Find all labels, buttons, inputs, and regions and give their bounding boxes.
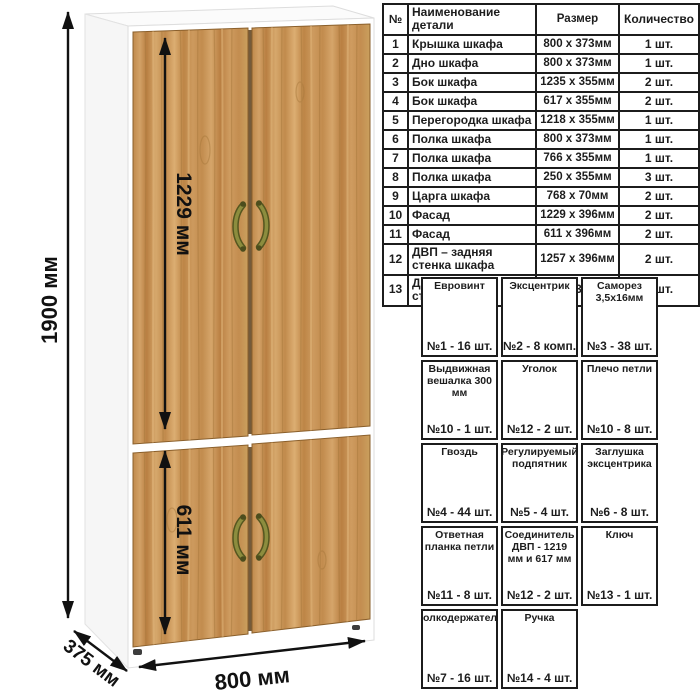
dimension-upper-door-label: 1229 мм bbox=[172, 172, 195, 256]
cabinet-side-panel bbox=[85, 14, 128, 668]
hardware-item: Заглушка эксцентрика№6 - 8 шт. bbox=[581, 443, 658, 523]
parts-table-header-row: № Наименование детали Размер Количество bbox=[383, 4, 699, 35]
table-cell-name: Крышка шкафа bbox=[408, 35, 536, 54]
table-row: 12ДВП – задняя стенка шкафа1257 x 396мм2… bbox=[383, 244, 699, 275]
table-cell-size: 800 x 373мм bbox=[536, 54, 619, 73]
dimension-lower-door-label: 611 мм bbox=[172, 505, 195, 576]
table-cell-name: Фасад bbox=[408, 206, 536, 225]
table-row: 2Дно шкафа800 x 373мм1 шт. bbox=[383, 54, 699, 73]
table-cell-num: 1 bbox=[383, 35, 408, 54]
hardware-item-count: №2 - 8 комп. bbox=[503, 339, 576, 353]
table-cell-num: 2 bbox=[383, 54, 408, 73]
table-cell-name: Фасад bbox=[408, 225, 536, 244]
dimension-height-label: 1900 мм bbox=[37, 256, 62, 344]
table-row: 8Полка шкафа250 x 355мм3 шт. bbox=[383, 168, 699, 187]
wardrobe-illustration: 1900 мм 1229 мм 611 мм 800 мм 375 мм bbox=[0, 0, 420, 700]
hardware-item-name: Ответная планка петли bbox=[424, 530, 495, 554]
hardware-item-name: Уголок bbox=[522, 364, 557, 376]
table-cell-qty: 2 шт. bbox=[619, 73, 699, 92]
table-cell-qty: 2 шт. bbox=[619, 187, 699, 206]
table-cell-name: Бок шкафа bbox=[408, 73, 536, 92]
hardware-item: Плечо петли№10 - 8 шт. bbox=[581, 360, 658, 440]
table-row: 7Полка шкафа766 x 355мм1 шт. bbox=[383, 149, 699, 168]
table-cell-num: 8 bbox=[383, 168, 408, 187]
table-row: 3Бок шкафа1235 x 355мм2 шт. bbox=[383, 73, 699, 92]
hardware-item-count: №7 - 16 шт. bbox=[427, 671, 493, 685]
table-row: 5Перегородка шкафа1218 x 355мм1 шт. bbox=[383, 111, 699, 130]
table-cell-qty: 1 шт. bbox=[619, 130, 699, 149]
hardware-item-name: Саморез 3,5x16мм bbox=[584, 281, 655, 305]
column-header-size: Размер bbox=[536, 4, 619, 35]
table-row: 9Царга шкафа768 x 70мм2 шт. bbox=[383, 187, 699, 206]
hardware-item-name: Регулируемый подпятник bbox=[501, 447, 578, 471]
hardware-item: Ключ№13 - 1 шт. bbox=[581, 526, 658, 606]
hardware-item-name: Гвоздь bbox=[441, 447, 478, 459]
cabinet-foot-left bbox=[133, 649, 142, 655]
hardware-item-name: Заглушка эксцентрика bbox=[584, 447, 655, 471]
table-cell-num: 10 bbox=[383, 206, 408, 225]
table-cell-size: 617 x 355мм bbox=[536, 92, 619, 111]
hardware-item-name: Выдвижная вешалка 300 мм bbox=[424, 364, 495, 399]
table-cell-size: 1229 x 396мм bbox=[536, 206, 619, 225]
table-cell-size: 768 x 70мм bbox=[536, 187, 619, 206]
table-row: 11Фасад611 x 396мм2 шт. bbox=[383, 225, 699, 244]
table-cell-num: 13 bbox=[383, 275, 408, 306]
hardware-item: Ручка№14 - 4 шт. bbox=[501, 609, 578, 689]
hardware-item-count: №3 - 38 шт. bbox=[587, 339, 653, 353]
hardware-item: Уголок№12 - 2 шт. bbox=[501, 360, 578, 440]
table-cell-num: 12 bbox=[383, 244, 408, 275]
hardware-item: Ответная планка петли№11 - 8 шт. bbox=[421, 526, 498, 606]
hardware-item-count: №12 - 2 шт. bbox=[507, 588, 573, 602]
table-cell-num: 3 bbox=[383, 73, 408, 92]
table-row: 10Фасад1229 x 396мм2 шт. bbox=[383, 206, 699, 225]
hardware-item-count: №14 - 4 шт. bbox=[507, 671, 573, 685]
table-cell-qty: 1 шт. bbox=[619, 54, 699, 73]
hardware-grid: Евровинт№1 - 16 шт.Эксцентрик№2 - 8 комп… bbox=[421, 277, 658, 689]
hardware-item: Регулируемый подпятник№5 - 4 шт. bbox=[501, 443, 578, 523]
table-cell-num: 7 bbox=[383, 149, 408, 168]
hardware-item: Полкодержатель№7 - 16 шт. bbox=[421, 609, 498, 689]
table-cell-size: 611 x 396мм bbox=[536, 225, 619, 244]
table-cell-name: Царга шкафа bbox=[408, 187, 536, 206]
table-cell-size: 800 x 373мм bbox=[536, 130, 619, 149]
table-cell-size: 1235 x 355мм bbox=[536, 73, 619, 92]
table-cell-name: Дно шкафа bbox=[408, 54, 536, 73]
hardware-item-count: №10 - 8 шт. bbox=[587, 422, 653, 436]
hardware-item-count: №13 - 1 шт. bbox=[587, 588, 653, 602]
table-cell-size: 250 x 355мм bbox=[536, 168, 619, 187]
cabinet-foot-right bbox=[352, 625, 360, 630]
table-cell-qty: 3 шт. bbox=[619, 168, 699, 187]
parts-table: № Наименование детали Размер Количество … bbox=[382, 3, 700, 307]
table-row: 6Полка шкафа800 x 373мм1 шт. bbox=[383, 130, 699, 149]
column-header-quantity: Количество bbox=[619, 4, 699, 35]
hardware-item: Соединитель ДВП - 1219 мм и 617 мм№12 - … bbox=[501, 526, 578, 606]
hardware-item-name: Плечо петли bbox=[587, 364, 652, 376]
table-cell-name: Полка шкафа bbox=[408, 149, 536, 168]
dimension-width-label: 800 мм bbox=[213, 662, 291, 695]
parts-table-body: 1Крышка шкафа800 x 373мм1 шт.2Дно шкафа8… bbox=[383, 35, 699, 306]
hardware-item-name: Ручка bbox=[524, 613, 554, 625]
table-cell-size: 800 x 373мм bbox=[536, 35, 619, 54]
hardware-item-name: Соединитель ДВП - 1219 мм и 617 мм bbox=[504, 530, 575, 565]
table-cell-name: ДВП – задняя стенка шкафа bbox=[408, 244, 536, 275]
assembly-sheet: 1900 мм 1229 мм 611 мм 800 мм 375 мм № Н… bbox=[0, 0, 700, 700]
table-cell-name: Полка шкафа bbox=[408, 130, 536, 149]
hardware-item-count: №6 - 8 шт. bbox=[590, 505, 649, 519]
hardware-item-name: Полкодержатель bbox=[421, 613, 498, 625]
hardware-item-name: Эксцентрик bbox=[509, 281, 569, 293]
table-cell-qty: 2 шт. bbox=[619, 225, 699, 244]
table-cell-qty: 2 шт. bbox=[619, 92, 699, 111]
table-row: 4Бок шкафа617 x 355мм2 шт. bbox=[383, 92, 699, 111]
table-cell-qty: 2 шт. bbox=[619, 206, 699, 225]
hardware-item-count: №12 - 2 шт. bbox=[507, 422, 573, 436]
table-cell-name: Полка шкафа bbox=[408, 168, 536, 187]
hardware-item-count: №1 - 16 шт. bbox=[427, 339, 493, 353]
hardware-item-count: №10 - 1 шт. bbox=[427, 422, 493, 436]
hardware-item-count: №4 - 44 шт. bbox=[427, 505, 493, 519]
column-header-name: Наименование детали bbox=[408, 4, 536, 35]
table-cell-size: 766 x 355мм bbox=[536, 149, 619, 168]
table-cell-num: 4 bbox=[383, 92, 408, 111]
hardware-item-count: №5 - 4 шт. bbox=[510, 505, 569, 519]
table-cell-qty: 2 шт. bbox=[619, 244, 699, 275]
table-row: 1Крышка шкафа800 x 373мм1 шт. bbox=[383, 35, 699, 54]
table-cell-name: Перегородка шкафа bbox=[408, 111, 536, 130]
hardware-item-name: Евровинт bbox=[434, 281, 485, 293]
table-cell-qty: 1 шт. bbox=[619, 149, 699, 168]
hardware-item-count: №11 - 8 шт. bbox=[427, 588, 492, 602]
table-cell-num: 11 bbox=[383, 225, 408, 244]
table-cell-size: 1218 x 355мм bbox=[536, 111, 619, 130]
table-cell-num: 9 bbox=[383, 187, 408, 206]
hardware-item: Эксцентрик№2 - 8 комп. bbox=[501, 277, 578, 357]
table-cell-name: Бок шкафа bbox=[408, 92, 536, 111]
hardware-item: Выдвижная вешалка 300 мм№10 - 1 шт. bbox=[421, 360, 498, 440]
hardware-item: Гвоздь№4 - 44 шт. bbox=[421, 443, 498, 523]
hardware-item: Евровинт№1 - 16 шт. bbox=[421, 277, 498, 357]
table-cell-num: 6 bbox=[383, 130, 408, 149]
hardware-item: Саморез 3,5x16мм№3 - 38 шт. bbox=[581, 277, 658, 357]
table-cell-qty: 1 шт. bbox=[619, 111, 699, 130]
table-cell-num: 5 bbox=[383, 111, 408, 130]
hardware-item-name: Ключ bbox=[606, 530, 634, 542]
column-header-number: № bbox=[383, 4, 408, 35]
table-cell-size: 1257 x 396мм bbox=[536, 244, 619, 275]
table-cell-qty: 1 шт. bbox=[619, 35, 699, 54]
